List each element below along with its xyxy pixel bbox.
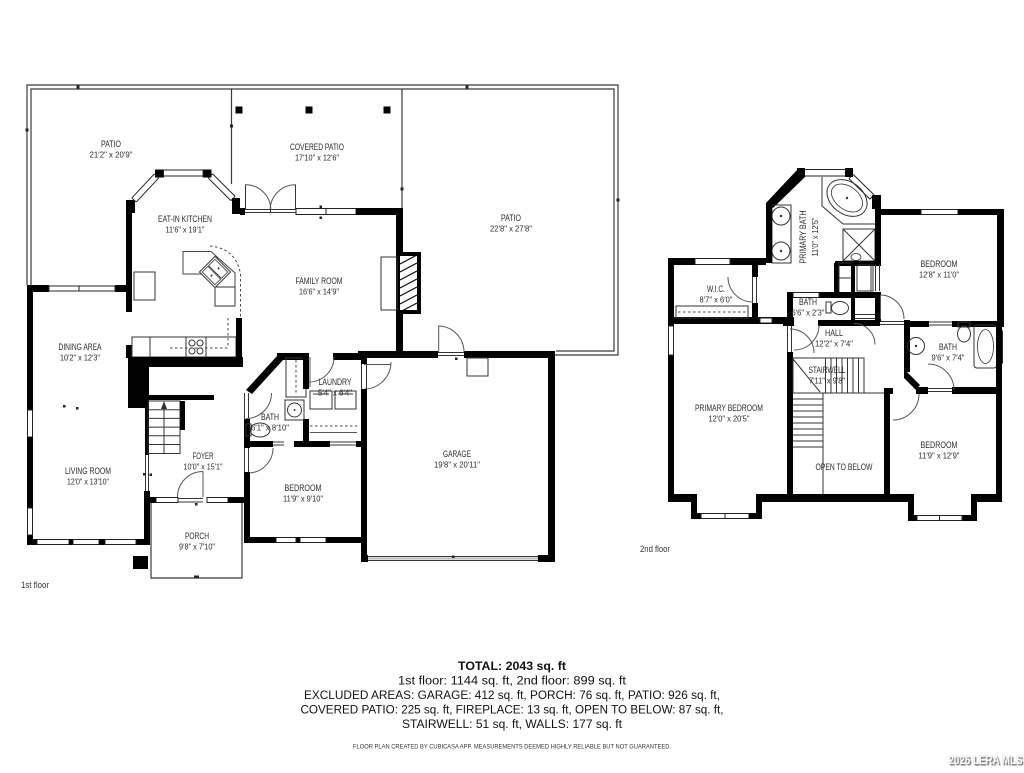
svg-text:1st floor: 1st floor: [21, 580, 49, 590]
svg-text:LAUNDRY: LAUNDRY: [319, 377, 352, 387]
svg-text:BEDROOM: BEDROOM: [285, 483, 322, 493]
svg-text:FLOOR PLAN CREATED BY CUBICASA: FLOOR PLAN CREATED BY CUBICASA APP. MEAS…: [353, 745, 671, 751]
svg-text:BEDROOM: BEDROOM: [921, 259, 958, 269]
svg-text:BATH: BATH: [261, 412, 279, 422]
svg-text:PRIMARY BEDROOM: PRIMARY BEDROOM: [695, 403, 763, 413]
svg-text:2026 LERA MLS: 2026 LERA MLS: [949, 755, 1023, 767]
svg-text:PORCH: PORCH: [185, 531, 209, 541]
svg-text:FOYER: FOYER: [193, 451, 214, 461]
svg-text:12′8" x 11′0": 12′8" x 11′0": [919, 271, 959, 280]
svg-text:16′6" x 14′9": 16′6" x 14′9": [299, 288, 339, 297]
svg-text:12′2" x 7′4": 12′2" x 7′4": [815, 340, 853, 349]
svg-text:EXCLUDED AREAS: GARAGE: 412 sq: EXCLUDED AREAS: GARAGE: 412 sq. ft, PORC…: [304, 690, 720, 702]
svg-text:BATH: BATH: [939, 342, 957, 352]
svg-text:12′0" x 20′5": 12′0" x 20′5": [709, 415, 750, 424]
svg-text:EAT-IN KITCHEN: EAT-IN KITCHEN: [158, 214, 212, 224]
svg-text:21′2" x 20′9": 21′2" x 20′9": [90, 151, 133, 160]
svg-text:OPEN TO BELOW: OPEN TO BELOW: [816, 462, 874, 472]
svg-text:11′0" x 12′5": 11′0" x 12′5": [811, 217, 820, 256]
svg-text:PATIO: PATIO: [501, 213, 521, 223]
svg-text:TOTAL: 2043 sq. ft: TOTAL: 2043 sq. ft: [458, 659, 566, 673]
svg-text:PRIMARY BATH: PRIMARY BATH: [798, 211, 808, 264]
svg-text:2nd floor: 2nd floor: [640, 544, 670, 554]
svg-text:1st floor: 1144 sq. ft, 2nd fl: 1st floor: 1144 sq. ft, 2nd floor: 899 s…: [398, 676, 627, 688]
svg-text:5′4" x 6′4": 5′4" x 6′4": [318, 389, 352, 398]
svg-text:BEDROOM: BEDROOM: [921, 440, 958, 450]
svg-text:6′6" x 2′3": 6′6" x 2′3": [792, 309, 825, 318]
svg-text:11′9" x 9′10": 11′9" x 9′10": [283, 495, 323, 504]
svg-text:BATH: BATH: [799, 297, 817, 307]
svg-text:DINING AREA: DINING AREA: [59, 342, 102, 352]
svg-text:LIVING ROOM: LIVING ROOM: [65, 466, 111, 476]
svg-text:22′8" x 27′8": 22′8" x 27′8": [490, 225, 532, 234]
svg-text:10′0" x 15′1": 10′0" x 15′1": [184, 463, 223, 472]
svg-text:19′8" x 20′11": 19′8" x 20′11": [434, 461, 480, 470]
svg-text:COVERED PATIO: 225 sq. ft, FIR: COVERED PATIO: 225 sq. ft, FIREPLACE: 13…: [301, 705, 724, 717]
svg-text:7′11" x 9′8": 7′11" x 9′8": [809, 377, 845, 386]
svg-text:9′6" x 7′4": 9′6" x 7′4": [932, 354, 965, 363]
svg-text:PATIO: PATIO: [101, 139, 121, 149]
svg-text:HALL: HALL: [825, 328, 843, 338]
svg-text:8′7" x 6′0": 8′7" x 6′0": [700, 296, 733, 305]
svg-text:FAMILY ROOM: FAMILY ROOM: [296, 276, 343, 286]
svg-text:STAIRWELL: 51 sq. ft, WALLS: 1: STAIRWELL: 51 sq. ft, WALLS: 177 sq. ft: [402, 719, 623, 731]
svg-text:COVERED PATIO: COVERED PATIO: [290, 142, 344, 152]
svg-text:6′1" x 8′10": 6′1" x 8′10": [251, 424, 289, 433]
svg-text:9′8" x 7′10": 9′8" x 7′10": [179, 543, 215, 552]
svg-text:12′0" x 13′10": 12′0" x 13′10": [67, 478, 109, 487]
svg-text:STAIRWELL: STAIRWELL: [809, 365, 846, 375]
svg-text:11′9" x 12′9": 11′9" x 12′9": [919, 452, 960, 461]
svg-text:W.I.C.: W.I.C.: [707, 284, 725, 294]
svg-text:17′10" x 12′6": 17′10" x 12′6": [295, 154, 339, 163]
svg-text:GARAGE: GARAGE: [443, 449, 471, 459]
svg-text:10′2" x 12′3": 10′2" x 12′3": [60, 354, 100, 363]
svg-text:11′6" x 19′1": 11′6" x 19′1": [166, 226, 205, 235]
